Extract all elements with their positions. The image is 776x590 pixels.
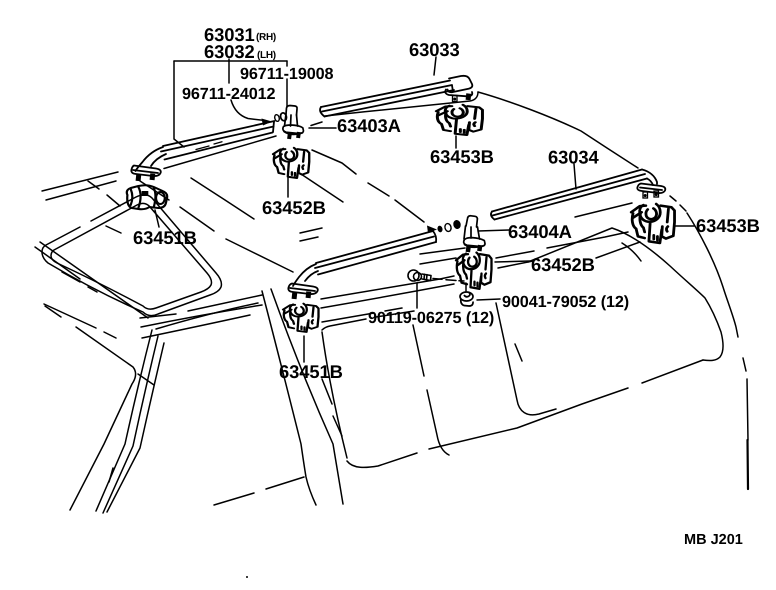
svg-text:90119-06275 (12): 90119-06275 (12) (368, 309, 494, 327)
svg-text:(LH): (LH) (257, 50, 276, 61)
svg-text:63032: 63032 (204, 41, 255, 62)
svg-text:(RH): (RH) (256, 32, 276, 43)
svg-text:MB J201: MB J201 (684, 532, 743, 548)
svg-text:63451B: 63451B (279, 361, 343, 382)
svg-text:63453B: 63453B (696, 215, 760, 236)
svg-text:63452B: 63452B (531, 254, 595, 275)
svg-text:63034: 63034 (548, 147, 600, 168)
svg-text:96711-24012: 96711-24012 (182, 85, 276, 103)
svg-text:63033: 63033 (409, 39, 460, 60)
svg-text:63404A: 63404A (508, 221, 572, 242)
svg-text:96711-19008: 96711-19008 (240, 65, 334, 83)
svg-text:63452B: 63452B (262, 197, 326, 218)
svg-text:63451B: 63451B (133, 227, 197, 248)
svg-text:90041-79052 (12): 90041-79052 (12) (502, 293, 629, 311)
svg-text:63453B: 63453B (430, 146, 494, 167)
svg-text:63403A: 63403A (337, 115, 401, 136)
